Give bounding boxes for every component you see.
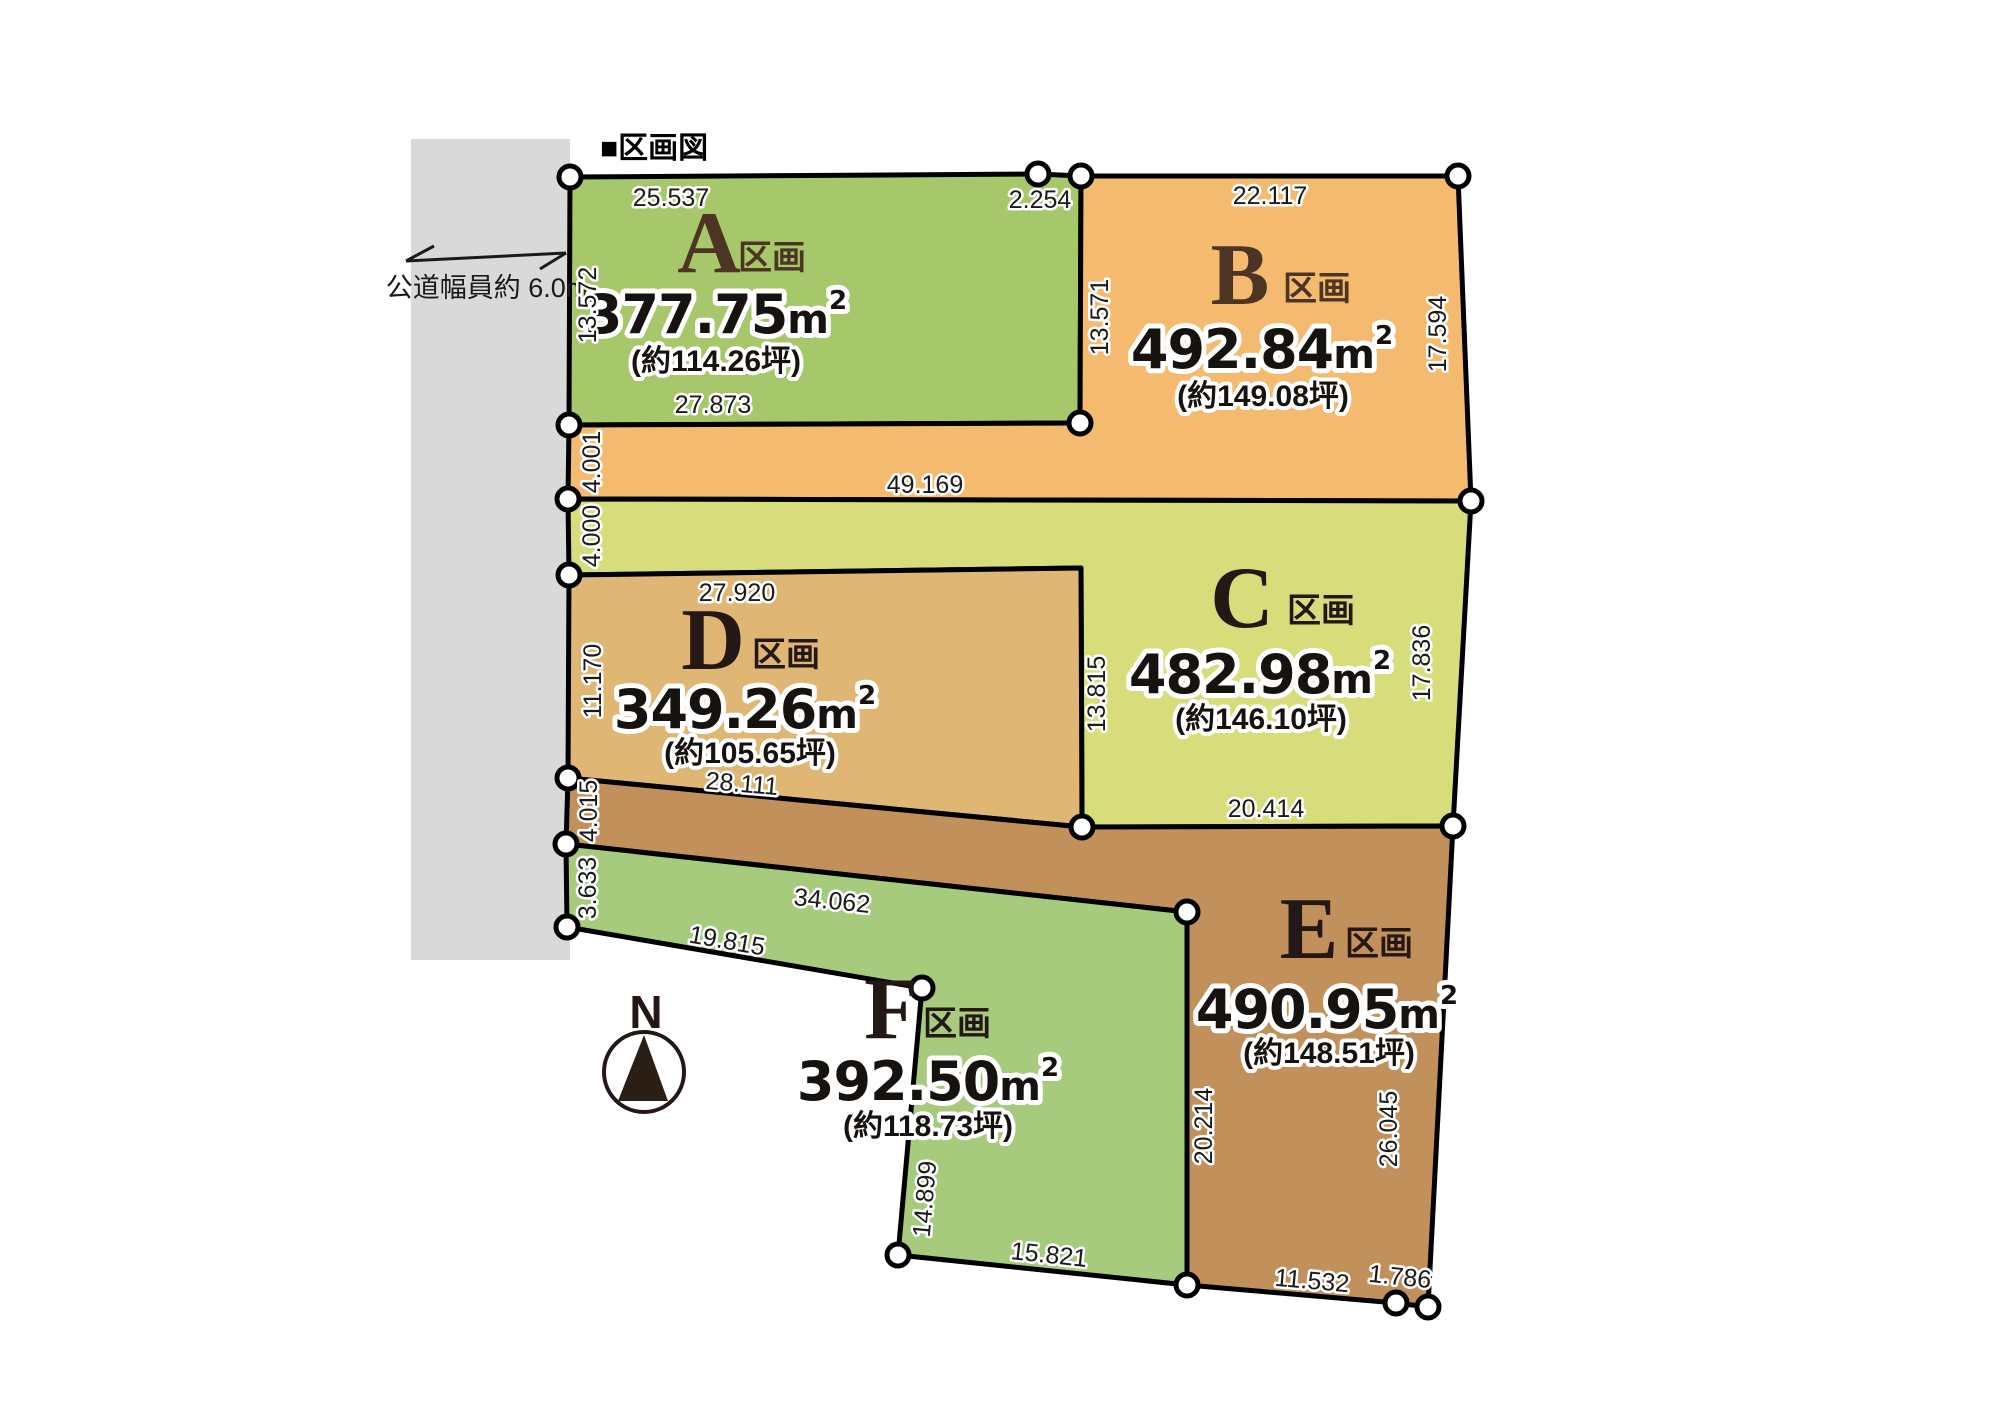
road-area — [411, 139, 570, 960]
plot-c-letter: C — [1210, 550, 1274, 647]
land-plot-diagram: ■区画図 公道幅員約 6.0m N A 区画 377.75m2 (約114.26… — [0, 0, 2000, 1413]
dimension-label: 17.594 — [1424, 296, 1452, 373]
dimension-label: 22.117 — [1233, 182, 1308, 210]
plot-c-suffix: 区画 — [1287, 592, 1355, 630]
plot-d-suffix: 区画 — [752, 636, 820, 674]
dimension-label: 11.170 — [579, 644, 607, 719]
plot-b-suffix: 区画 — [1283, 270, 1351, 308]
plot-d-tsubo: (約105.65坪) — [664, 737, 836, 770]
dimension-label: 4.015 — [575, 780, 603, 843]
plot-e-letter: E — [1280, 881, 1339, 978]
north-compass-icon: N — [604, 986, 684, 1112]
plot-f-tsubo: (約118.73坪) — [843, 1110, 1013, 1143]
plot-map-svg: ■区画図 公道幅員約 6.0m N A 区画 377.75m2 (約114.26… — [0, 0, 2000, 1413]
plot-e-tsubo: (約148.51坪) — [1243, 1037, 1415, 1070]
page-title: ■区画図 — [600, 132, 708, 165]
plot-e-suffix: 区画 — [1345, 925, 1413, 963]
dimension-label: 49.169 — [887, 471, 963, 499]
dimension-label: 20.214 — [1190, 1088, 1218, 1165]
plot-c-tsubo: (約146.10坪) — [1175, 703, 1347, 736]
dimension-label: 26.045 — [1375, 1091, 1403, 1167]
dimension-label: 13.815 — [1083, 656, 1111, 732]
dimension-label: 2.254 — [1009, 186, 1072, 214]
dimension-label: 3.633 — [574, 857, 602, 920]
plot-b-letter: B — [1211, 227, 1270, 324]
plot-a-tsubo: (約114.26坪) — [631, 345, 801, 378]
dimension-label: 13.572 — [574, 267, 602, 343]
road-width-label: 公道幅員約 6.0m — [386, 273, 589, 303]
dimension-label: 27.920 — [699, 579, 775, 607]
dimension-label: 27.873 — [675, 391, 751, 419]
dimension-label: 4.000 — [578, 505, 606, 568]
dimension-label: 13.571 — [1086, 279, 1114, 355]
plot-f-suffix: 区画 — [923, 1005, 991, 1043]
plot-b-tsubo: (約149.08坪) — [1177, 380, 1349, 413]
plot-a-suffix: 区画 — [738, 239, 806, 277]
dimension-label: 17.836 — [1408, 625, 1436, 701]
plot-f-letter: F — [864, 961, 918, 1058]
dimension-label: 20.414 — [1228, 795, 1305, 823]
dimension-label: 4.001 — [578, 431, 606, 494]
dimension-label: 25.537 — [633, 184, 709, 212]
